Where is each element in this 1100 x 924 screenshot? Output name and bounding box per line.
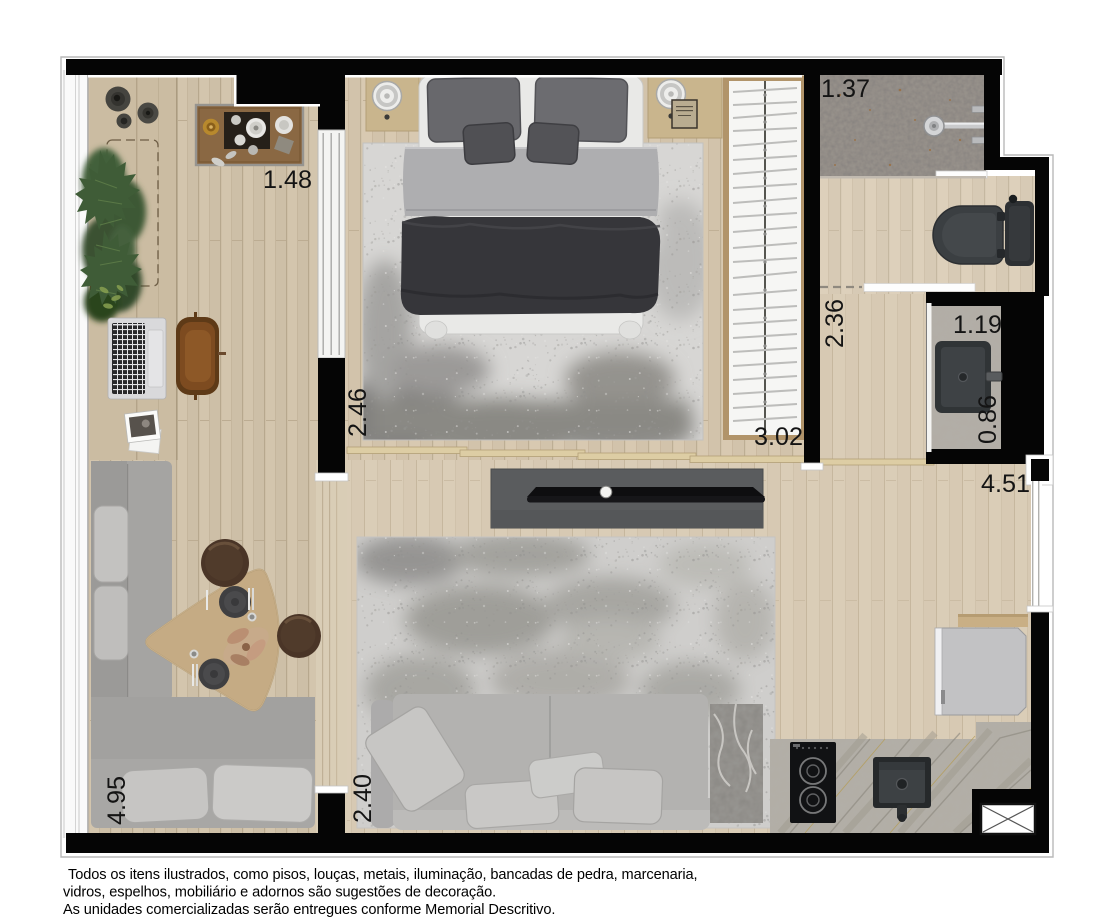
svg-text:1.19: 1.19 [953, 311, 1002, 339]
svg-text:2.36: 2.36 [821, 299, 849, 348]
svg-text:4.95: 4.95 [103, 776, 131, 825]
svg-text:vidros, espelhos, mobiliário e: vidros, espelhos, mobiliário e adornos s… [63, 885, 496, 901]
svg-text:1.48: 1.48 [263, 166, 312, 194]
svg-text:0.86: 0.86 [974, 395, 1002, 444]
svg-text:2.46: 2.46 [344, 388, 372, 437]
svg-text:1.37: 1.37 [821, 75, 870, 103]
svg-text:2.40: 2.40 [349, 774, 377, 823]
svg-text:3.02: 3.02 [754, 423, 803, 451]
svg-text:Todos os itens ilustrados, com: Todos os itens ilustrados, como pisos, l… [68, 867, 698, 883]
svg-text:As unidades comercializadas se: As unidades comercializadas serão entreg… [63, 902, 555, 918]
svg-text:4.51: 4.51 [981, 470, 1030, 498]
